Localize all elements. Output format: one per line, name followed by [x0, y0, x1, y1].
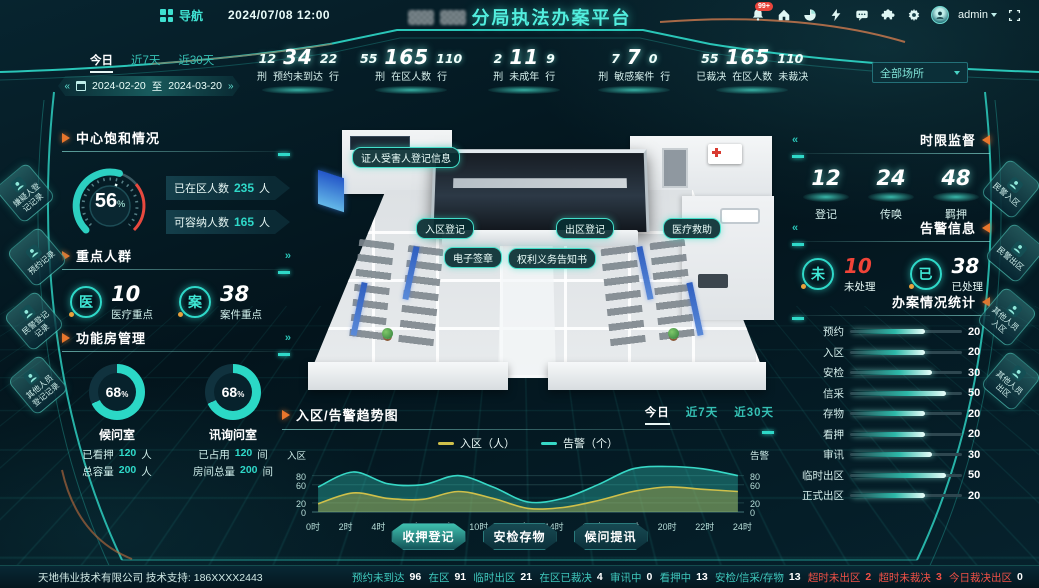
legend-item: 告警（个）	[541, 435, 618, 451]
alarm-value: 10	[844, 254, 876, 278]
pedestal-glow	[716, 86, 788, 94]
place-select[interactable]: 全部场所	[872, 62, 968, 83]
stat-right-label: 行	[545, 68, 555, 83]
action-button[interactable]: 收押登记	[392, 523, 466, 550]
footer-stat: 安检/信采/存物 13	[715, 570, 801, 585]
key-group-value: 38	[220, 282, 262, 306]
floorplan-back-wall-right	[630, 136, 772, 196]
page-title: 分局执法办案平台	[472, 4, 632, 30]
stat-label: 已在区人数	[174, 180, 229, 196]
bar-value: 20	[968, 490, 990, 502]
pedestal-glow	[488, 86, 560, 94]
left-panel: 中心饱和情况 56% 已在区人数 235 人 可容纳人数 165 人	[62, 128, 290, 464]
room-donut-chart: 68%	[205, 364, 261, 420]
stat-left-value: 2	[494, 51, 503, 66]
donut-value: 68	[106, 384, 122, 400]
stat-main-value: 165	[726, 45, 771, 69]
x-tick-label: 24时	[733, 520, 752, 533]
edge-tab[interactable]: 预约记录	[6, 226, 68, 288]
stat-unit: 人	[259, 214, 270, 230]
datetime: 2024/07/08 12:00	[228, 8, 330, 22]
y-tick-label: 0	[301, 508, 306, 518]
x-tick-label: 20时	[658, 520, 677, 533]
key-groups-section: 重点人群 » 医 10 医疗重点 案 38 案件重点	[62, 246, 290, 322]
footer-stat: 在区 91	[428, 570, 466, 585]
floorplan-front-wall-right	[548, 362, 766, 390]
bar-value: 50	[968, 469, 990, 481]
double-chevron-icon: «	[792, 222, 797, 234]
floorplan-plant	[382, 328, 393, 339]
bar-label: 审讯	[792, 447, 844, 462]
legend-label: 告警（个）	[563, 435, 618, 451]
double-chevron-icon: »	[285, 250, 290, 262]
pedestal-glow	[868, 192, 914, 202]
place-select-value: 全部场所	[880, 65, 924, 81]
nav-menu-button[interactable]: 导航	[160, 7, 203, 24]
key-group-item: 案 38 案件重点	[179, 282, 262, 322]
redacted-text-block	[408, 10, 434, 25]
legend-swatch	[541, 442, 557, 445]
bar-track	[850, 412, 962, 415]
stat-value: 165	[234, 215, 254, 229]
room-item: 68% 讯询问室 已占用 120 间 房间总量 200 间	[190, 364, 276, 479]
range-tab[interactable]: 近7天	[686, 404, 718, 425]
alarm-badge-icon: 已	[910, 258, 942, 290]
case-stat-row: 存物 20	[792, 406, 990, 421]
bar-track	[850, 392, 962, 395]
date-end[interactable]: 2024-03-20	[168, 80, 222, 92]
y-tick-label: 80	[750, 472, 760, 482]
y-axis-right: 告警0206080	[748, 454, 774, 516]
footer-stat: 超时未出区 2	[808, 570, 871, 585]
stat-right-value: 110	[777, 51, 803, 66]
bar-track	[850, 330, 962, 333]
bar-label: 看押	[792, 427, 844, 442]
stat-main-label: 预约未到达	[273, 68, 323, 83]
stat-main-label: 在区人数	[391, 68, 431, 83]
y-tick-label: 80	[296, 472, 306, 482]
date-start[interactable]: 2024-02-20	[92, 80, 146, 92]
stat-left-value: 7	[611, 51, 620, 66]
section-title: 办案情况统计	[892, 292, 976, 311]
date-range-picker[interactable]: « 2024-02-20 至 2024-03-20 »	[58, 76, 240, 96]
alarm-value: 38	[952, 254, 984, 278]
chat-icon[interactable]	[853, 7, 870, 24]
company-info: 天地伟业技术有限公司 技术支持: 186XXXX2443	[38, 570, 263, 585]
alarm-items: 未 10 未处理 已 38 已处理	[792, 254, 990, 294]
top-stat-group: 12 34 22 刑 预约未到达 行	[250, 40, 346, 94]
floorplan-label[interactable]: 出区登记	[556, 218, 614, 239]
x-tick-label: 0时	[306, 520, 320, 533]
grid-menu-icon	[160, 9, 173, 22]
puzzle-icon[interactable]	[879, 7, 896, 24]
case-stat-row: 临时出区 50	[792, 468, 990, 483]
bar-label: 预约	[792, 324, 844, 339]
stat-right-value: 0	[649, 51, 658, 66]
bar-value: 30	[968, 449, 990, 461]
header-icons: 99+ admin	[749, 6, 1023, 24]
stat-main-value: 11	[509, 45, 539, 69]
category-badge-icon: 医	[70, 286, 102, 318]
y-tick-label: 0	[750, 508, 755, 518]
chevron-right-icon[interactable]: »	[228, 81, 234, 92]
bar-label: 临时出区	[792, 468, 844, 483]
case-stat-row: 入区 20	[792, 345, 990, 360]
x-tick-label: 22时	[695, 520, 714, 533]
bar-value: 20	[968, 428, 990, 440]
gauge-value: 56	[95, 190, 117, 212]
arrow-right-icon	[62, 133, 70, 143]
donut-value: 68	[222, 384, 238, 400]
bell-icon[interactable]: 99+	[749, 7, 766, 24]
y-tick-label: 20	[750, 499, 760, 509]
stat-left-label: 已裁决	[696, 68, 726, 83]
case-stat-row: 安检 30	[792, 365, 990, 380]
supervision-items: 12 登记 24 传唤 48 羁押	[792, 166, 990, 222]
floorplan-front-wall-left	[308, 362, 508, 390]
footer-stat: 临时出区 21	[473, 570, 532, 585]
gauge-unit: %	[117, 199, 125, 209]
case-stat-row: 正式出区 20	[792, 488, 990, 503]
legend-swatch	[438, 442, 454, 445]
bar-track	[850, 433, 962, 436]
rooms-section: 功能房管理 » 68% 候问室 已看押 120 人 总容量 200 人 68% …	[62, 328, 290, 479]
top-stat-group: 7 7 0 刑 敏感案件 行	[586, 40, 682, 94]
key-group-item: 医 10 医疗重点	[70, 282, 153, 322]
category-badge-icon: 案	[179, 286, 211, 318]
range-tab[interactable]: 近7天	[131, 52, 160, 73]
trend-chart: 入区0206080 告警0206080	[282, 454, 774, 516]
alarm-badge-icon: 未	[802, 258, 834, 290]
bar-track	[850, 351, 962, 354]
bar-label: 安检	[792, 365, 844, 380]
room-donut-chart: 68%	[89, 364, 145, 420]
stat-left-label: 刑	[257, 68, 267, 83]
top-stat-group: 2 11 9 刑 未成年 行	[476, 40, 572, 94]
range-tab[interactable]: 今日	[90, 52, 113, 73]
chevron-down-icon	[954, 71, 960, 75]
action-buttons: 收押登记安检存物候问提讯	[392, 523, 648, 550]
chevron-left-icon[interactable]: «	[64, 81, 70, 92]
stat-main-value: 7	[627, 45, 642, 69]
chart-legend: 入区（人） 告警（个）	[282, 435, 774, 451]
pedestal-glow	[803, 192, 849, 202]
footer-status-bar: 天地伟业技术有限公司 技术支持: 186XXXX2443 预约未到达 96 在区…	[0, 565, 1039, 588]
key-group-value: 10	[111, 282, 153, 306]
section-title: 中心饱和情况	[76, 128, 160, 147]
footer-stat: 在区已裁决 4	[539, 570, 602, 585]
bar-track	[850, 453, 962, 456]
nav-label: 导航	[179, 7, 203, 24]
saturation-gauge: 56%	[62, 160, 158, 250]
stat-row: 已看押 120 人	[74, 447, 160, 462]
saturation-row: 可容纳人数 165 人	[166, 210, 290, 234]
legend-label: 入区（人）	[460, 435, 515, 451]
supervision-value: 12	[798, 166, 854, 190]
key-group-items: 医 10 医疗重点 案 38 案件重点	[62, 282, 290, 322]
stat-left-value: 55	[701, 51, 718, 66]
y-tick-label: 20	[296, 499, 306, 509]
floorplan-bed	[720, 208, 760, 224]
room-rows: 已占用 120 间 房间总量 200 间	[190, 447, 276, 479]
stat-row: 房间总量 200 间	[190, 464, 276, 479]
section-title: 功能房管理	[76, 328, 146, 347]
stat-row: 已占用 120 间	[190, 447, 276, 462]
bar-track	[850, 494, 962, 497]
bar-label: 存物	[792, 406, 844, 421]
stat-label: 可容纳人数	[174, 214, 229, 230]
floorplan-desk	[698, 274, 728, 288]
top-stats-row: 12 34 22 刑 预约未到达 行 55 165 110 刑 在区人数 行 2…	[250, 40, 808, 94]
case-stats-section: 办案情况统计 预约 20 入区 20 安检 30 信采 50 存物 20 看押 …	[792, 292, 990, 503]
bar-fill	[850, 329, 925, 334]
pedestal-glow	[262, 86, 334, 94]
range-tab[interactable]: 近30天	[734, 404, 774, 425]
stat-left-label: 刑	[598, 68, 608, 83]
y-axis-title: 入区	[287, 448, 306, 462]
stat-left-label: 刑	[375, 68, 385, 83]
edge-tab[interactable]: 其他人员登记记录	[7, 354, 69, 416]
footer-stat: 看押中 13	[660, 570, 708, 585]
pedestal-glow	[375, 86, 447, 94]
trend-panel: 入区/告警趋势图 今日近7天近30天 入区（人） 告警（个） 入区0206080…	[282, 404, 774, 520]
trend-range-tabs: 今日近7天近30天	[645, 404, 774, 425]
stat-right-label: 行	[437, 68, 447, 83]
arrow-right-icon	[282, 410, 290, 420]
top-stat-group: 55 165 110 已裁决 在区人数 未裁决	[696, 40, 808, 94]
x-tick-label: 2时	[339, 520, 353, 533]
bar-fill	[850, 411, 925, 416]
chevron-down-icon	[991, 13, 997, 17]
bar-fill	[850, 452, 932, 457]
floorplan-label[interactable]: 权利义务告知书	[508, 248, 596, 269]
arrow-left-icon	[982, 223, 990, 233]
supervision-item: 12 登记	[798, 166, 854, 222]
saturation-section: 中心饱和情况 56% 已在区人数 235 人 可容纳人数 165 人	[62, 128, 290, 250]
arrow-right-icon	[62, 333, 70, 343]
avatar[interactable]	[931, 6, 949, 24]
room-rows: 已看押 120 人 总容量 200 人	[74, 447, 160, 479]
bar-fill	[850, 473, 946, 478]
stat-left-value: 55	[360, 51, 377, 66]
calendar-icon	[76, 81, 86, 91]
section-title: 重点人群	[76, 246, 132, 265]
stat-right-value: 110	[436, 51, 462, 66]
lightning-icon[interactable]	[827, 7, 844, 24]
stat-right-value: 9	[546, 51, 555, 66]
case-stat-row: 预约 20	[792, 324, 990, 339]
stat-right-label: 未裁决	[778, 68, 808, 83]
floorplan-door	[662, 148, 688, 188]
edge-tab[interactable]: 民警出区	[984, 222, 1039, 284]
alarm-item: 未 10 未处理	[802, 254, 876, 294]
bar-value: 20	[968, 346, 990, 358]
bar-fill	[850, 493, 925, 498]
bar-track	[850, 474, 962, 477]
key-group-label: 医疗重点	[111, 307, 153, 322]
user-name: admin	[958, 9, 988, 21]
floorplan-label[interactable]: 医疗救助	[663, 218, 721, 239]
supervision-item: 48 羁押	[928, 166, 984, 222]
top-stat-group: 55 165 110 刑 在区人数 行	[360, 40, 462, 94]
dashboard: 导航 2024/07/08 12:00 分局执法办案平台 99+	[0, 0, 1039, 588]
fullscreen-icon[interactable]	[1006, 7, 1023, 24]
section-title: 入区/告警趋势图	[296, 405, 399, 424]
section-title: 告警信息	[920, 218, 976, 237]
stat-main-label: 敏感案件	[614, 68, 654, 83]
y-tick-label: 60	[296, 481, 306, 491]
y-tick-label: 60	[750, 481, 760, 491]
medical-cross-sign	[708, 144, 742, 164]
alarm-item: 已 38 已处理	[910, 254, 984, 294]
key-group-label: 案件重点	[220, 307, 262, 322]
bar-fill	[850, 391, 946, 396]
pedestal-glow	[598, 86, 670, 94]
supervision-value: 24	[863, 166, 919, 190]
footer-stat: 今日裁决出区 0	[949, 570, 1023, 585]
y-axis-left: 入区0206080	[282, 454, 308, 516]
bar-fill	[850, 370, 932, 375]
double-chevron-icon: »	[285, 332, 290, 344]
footer-stat: 超时未裁决 3	[878, 570, 941, 585]
arrow-left-icon	[982, 135, 990, 145]
header: 导航 2024/07/08 12:00 分局执法办案平台 99+	[0, 0, 1039, 32]
stat-right-value: 22	[320, 51, 337, 66]
right-panel: « 时限监督 12 登记 24 传唤 48 羁押 « 告警信息	[792, 130, 990, 475]
stat-main-value: 165	[384, 45, 429, 69]
alarms-section: « 告警信息 未 10 未处理 已 38 已处理	[792, 218, 990, 294]
case-stat-bars: 预约 20 入区 20 安检 30 信采 50 存物 20 看押 20 审讯 3…	[792, 324, 990, 503]
bar-label: 入区	[792, 345, 844, 360]
bar-fill	[850, 432, 925, 437]
room-item: 68% 候问室 已看押 120 人 总容量 200 人	[74, 364, 160, 479]
stat-value: 235	[234, 181, 254, 195]
footer-stats: 预约未到达 96 在区 91 临时出区 21 在区已裁决 4 审讯中 0 看押中…	[352, 570, 1023, 585]
bar-label: 正式出区	[792, 488, 844, 503]
case-stat-row: 看押 20	[792, 427, 990, 442]
supervision-item: 24 传唤	[863, 166, 919, 222]
stat-right-label: 行	[329, 68, 339, 83]
x-tick-label: 4时	[371, 520, 385, 533]
y-axis-title: 告警	[750, 448, 769, 462]
floorplan-side-screen	[318, 170, 344, 212]
gear-icon[interactable]	[905, 7, 922, 24]
bar-track	[850, 371, 962, 374]
section-title: 时限监督	[920, 130, 976, 149]
range-tab[interactable]: 今日	[645, 404, 670, 425]
bar-value: 20	[968, 408, 990, 420]
floorplan-label[interactable]: 电子签章	[444, 247, 502, 268]
supervision-value: 48	[928, 166, 984, 190]
date-separator: 至	[152, 79, 163, 94]
floorplan-label[interactable]: 入区登记	[416, 218, 474, 239]
footer-stat: 审讯中 0	[610, 570, 652, 585]
action-button[interactable]: 安检存物	[483, 523, 557, 550]
floorplan-label[interactable]: 证人受害人登记信息	[352, 147, 460, 168]
range-tab[interactable]: 近30天	[178, 52, 214, 73]
double-chevron-icon: «	[792, 134, 797, 146]
legend-item: 入区（人）	[438, 435, 515, 451]
stat-left-label: 刑	[493, 68, 503, 83]
stat-unit: 人	[259, 180, 270, 196]
action-button[interactable]: 候问提讯	[574, 523, 648, 550]
stat-left-value: 12	[259, 51, 276, 66]
page-title-wrap: 分局执法办案平台	[408, 4, 632, 30]
saturation-row: 已在区人数 235 人	[166, 176, 290, 200]
bar-label: 信采	[792, 386, 844, 401]
bar-fill	[850, 350, 925, 355]
notification-badge: 99+	[755, 2, 773, 11]
case-stat-row: 信采 50	[792, 386, 990, 401]
user-menu[interactable]: admin	[958, 9, 997, 21]
room-name: 讯询问室	[190, 426, 276, 443]
edge-tab[interactable]: 嫌疑人登记记录	[0, 162, 56, 224]
stat-main-label: 未成年	[509, 68, 539, 83]
stat-main-value: 34	[283, 45, 313, 69]
date-range-tabs: 今日近7天近30天	[90, 52, 214, 73]
stat-row: 总容量 200 人	[74, 464, 160, 479]
footer-stat: 预约未到达 96	[352, 570, 421, 585]
supervision-section: « 时限监督 12 登记 24 传唤 48 羁押	[792, 130, 990, 222]
stat-right-label: 行	[660, 68, 670, 83]
home-icon[interactable]	[775, 7, 792, 24]
case-stat-row: 审讯 30	[792, 447, 990, 462]
pie-chart-icon[interactable]	[801, 7, 818, 24]
pedestal-glow	[933, 192, 979, 202]
saturation-rows: 已在区人数 235 人 可容纳人数 165 人	[166, 176, 290, 234]
room-items: 68% 候问室 已看押 120 人 总容量 200 人 68% 讯询问室 已占用…	[62, 364, 290, 479]
edge-tab[interactable]: 民警登记记录	[3, 290, 65, 352]
room-name: 候问室	[74, 426, 160, 443]
floorplan-plant	[668, 328, 679, 339]
stat-main-label: 在区人数	[732, 68, 772, 83]
redacted-text-block	[440, 10, 466, 25]
